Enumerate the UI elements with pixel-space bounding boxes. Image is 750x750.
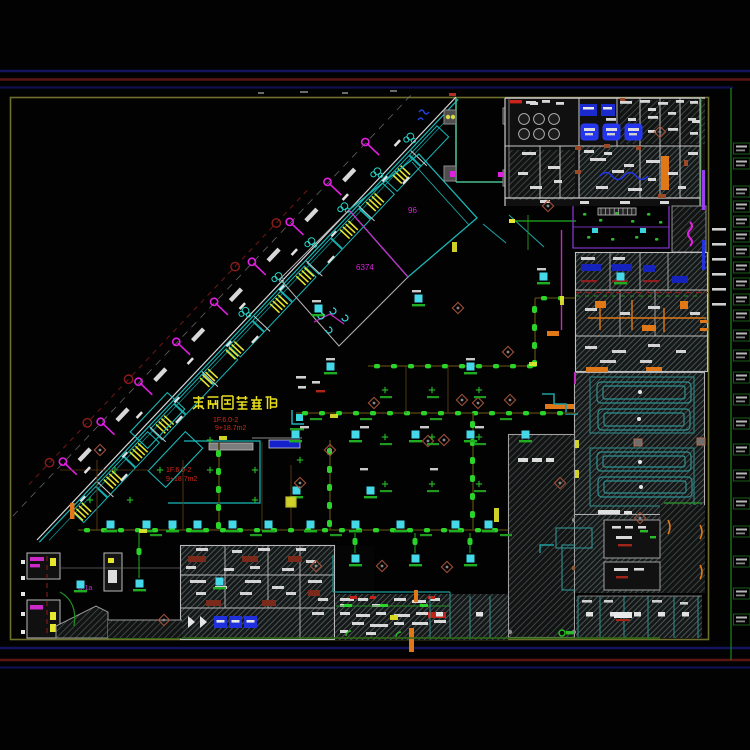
- svg-text:1F.6.0-2: 1F.6.0-2: [213, 417, 238, 424]
- svg-text:6374: 6374: [356, 263, 374, 272]
- svg-text:9+18.7m2: 9+18.7m2: [215, 425, 246, 432]
- svg-text:96: 96: [408, 206, 417, 215]
